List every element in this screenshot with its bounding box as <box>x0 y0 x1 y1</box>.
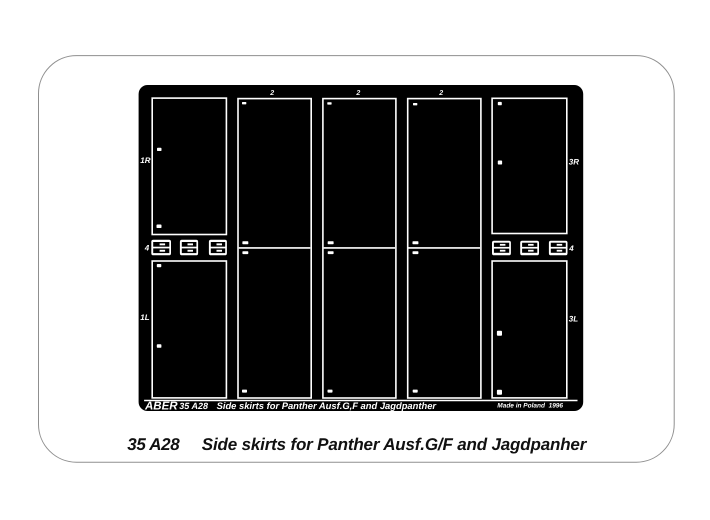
svg-text:3R: 3R <box>569 158 579 167</box>
svg-text:4: 4 <box>144 244 150 253</box>
svg-text:1R: 1R <box>140 156 150 165</box>
svg-text:Side skirts for Panther Ausf.G: Side skirts for Panther Ausf.G,F and Jag… <box>217 400 438 411</box>
svg-text:ABER: ABER <box>144 400 178 412</box>
svg-text:2: 2 <box>438 90 443 97</box>
svg-text:35 A28: 35 A28 <box>179 401 208 411</box>
svg-text:3L: 3L <box>569 315 578 324</box>
svg-text:2: 2 <box>355 90 360 97</box>
svg-text:1L: 1L <box>140 313 149 322</box>
svg-text:Side skirts for Panther Ausf.G: Side skirts for Panther Ausf.G/F and Jag… <box>202 435 588 454</box>
svg-text:4: 4 <box>568 244 574 253</box>
svg-text:Made in Poland 1996: Made in Poland 1996 <box>497 403 563 410</box>
svg-text:35 A28: 35 A28 <box>127 435 180 454</box>
svg-text:2: 2 <box>269 90 274 97</box>
